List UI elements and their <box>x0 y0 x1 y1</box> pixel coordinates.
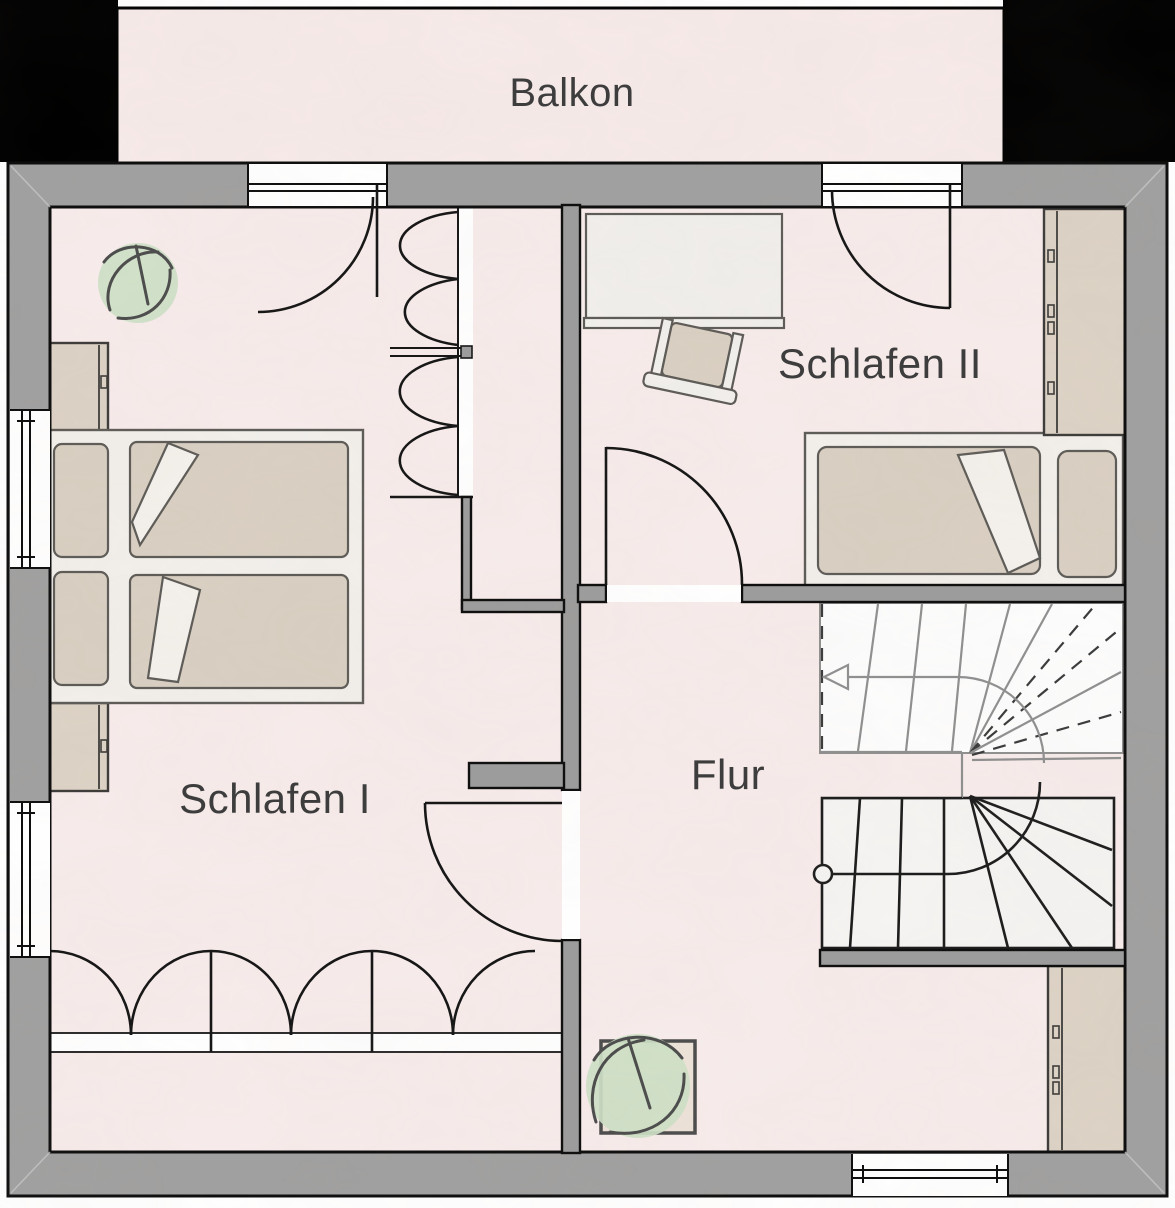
room-label-flur: Flur <box>691 751 765 798</box>
floor-plan-page: Balkon Schlafen I Schlafen II Flur <box>0 0 1175 1208</box>
room-label-schlafen-1: Schlafen I <box>179 775 371 822</box>
floor-plan-drawing: Balkon Schlafen I Schlafen II Flur <box>0 0 1175 1208</box>
paper-texture <box>8 8 1167 1198</box>
balcony-label: Balkon <box>509 71 634 115</box>
room-label-schlafen-2: Schlafen II <box>778 340 982 387</box>
